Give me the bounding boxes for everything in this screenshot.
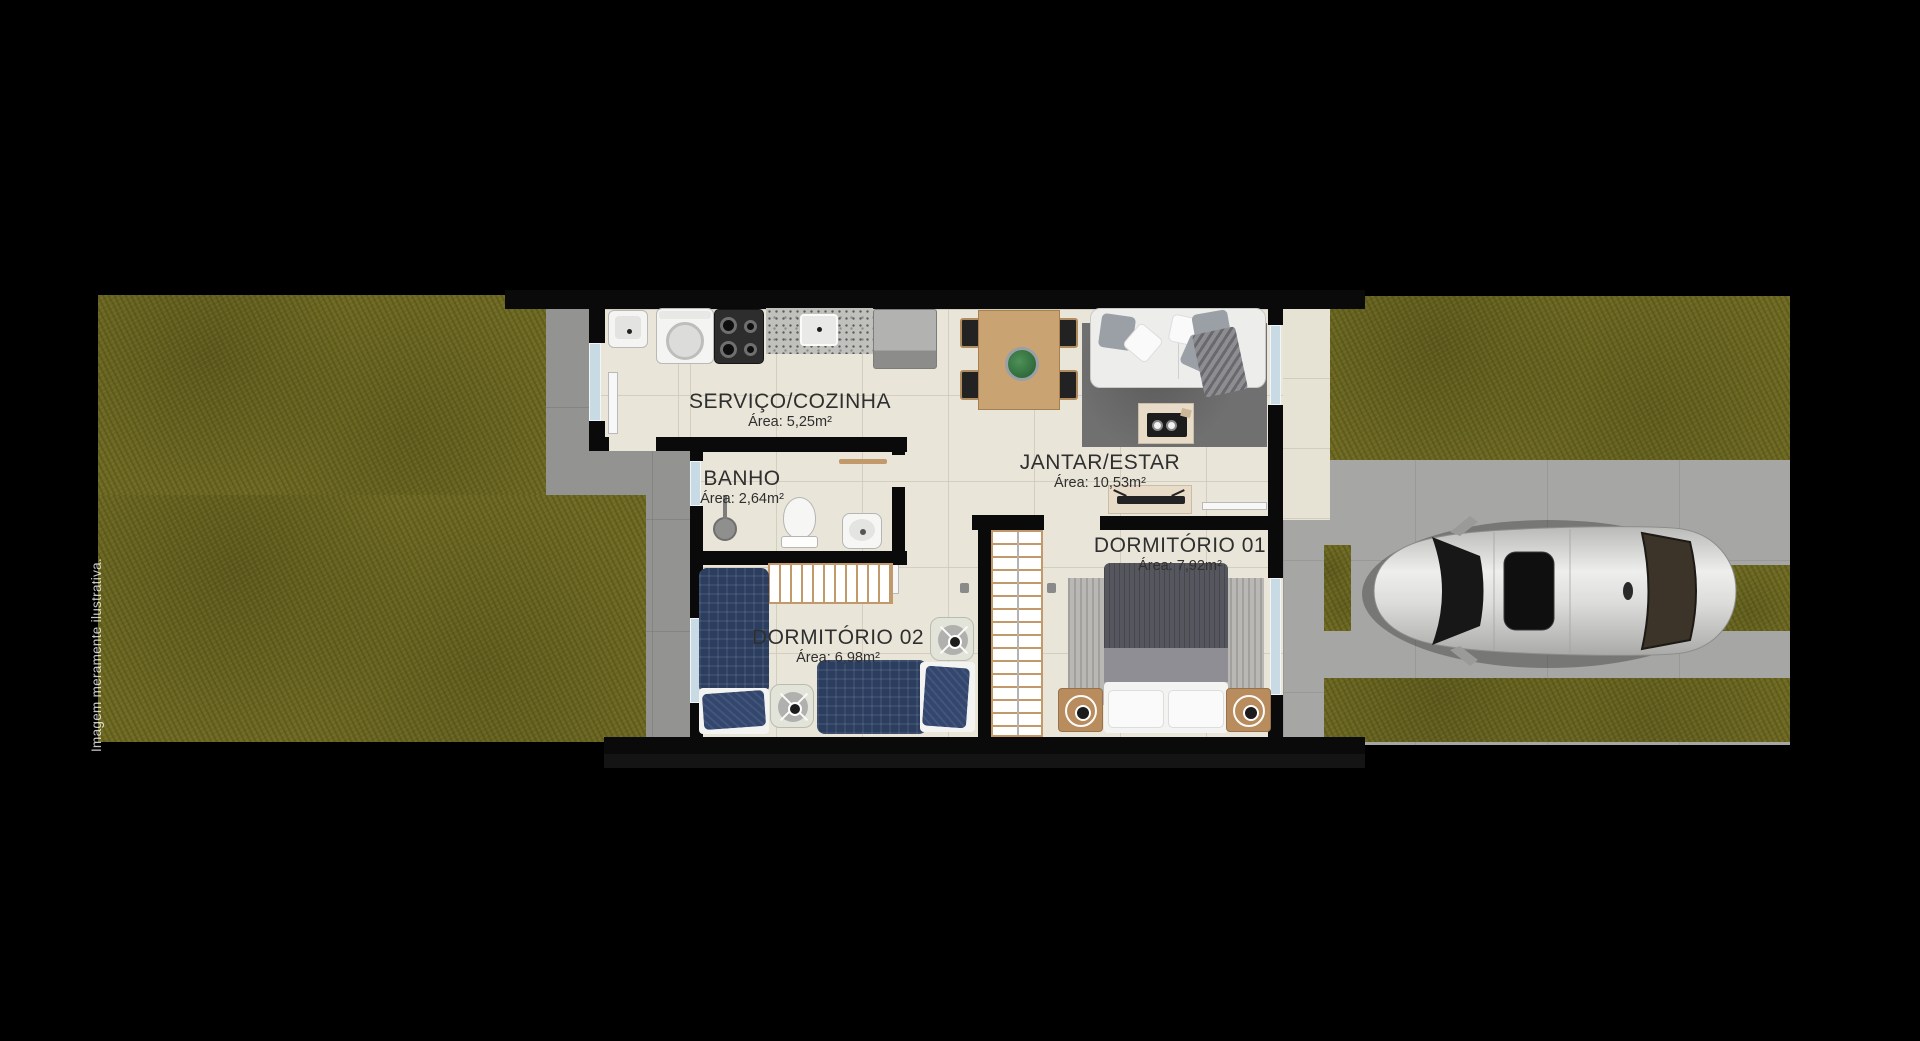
- coffee-table: [1138, 403, 1194, 444]
- car-sunroof: [1504, 552, 1554, 630]
- wall-kitchen-banho: [703, 437, 907, 452]
- bed-single-horizontal: [817, 660, 927, 734]
- shower-head: [713, 517, 737, 541]
- wall-service-west-a: [589, 309, 605, 343]
- grass-left-upper: [98, 295, 546, 497]
- table-plant: [1005, 347, 1039, 381]
- wall-bottom-shadow: [604, 754, 1365, 768]
- washer-panel: [659, 311, 711, 319]
- burner: [720, 341, 737, 358]
- room-name: DORMITÓRIO 01: [1030, 534, 1330, 558]
- room-name: JANTAR/ESTAR: [950, 451, 1250, 475]
- lamp: [778, 692, 808, 722]
- nightstand: [1058, 688, 1103, 732]
- car-antenna: [1623, 582, 1633, 600]
- room-name: DORMITÓRIO 02: [688, 626, 988, 650]
- burner: [744, 320, 757, 333]
- laundry-tub-basin: [615, 316, 641, 339]
- towel-bar: [839, 459, 887, 464]
- stair-rail-mark-right: [1047, 583, 1056, 593]
- room-label-dormitorio-02: DORMITÓRIO 02 Área: 6,98m²: [688, 626, 988, 667]
- watermark-text: Imagem meramente ilustrativa.: [89, 558, 104, 752]
- room-label-dormitorio-01: DORMITÓRIO 01 Área: 7,92m²: [1030, 534, 1330, 575]
- lamp: [1065, 695, 1097, 727]
- wall-stair-header: [972, 515, 1044, 530]
- door-service-leaf: [608, 372, 618, 434]
- grass-strip-bottom-right: [1324, 678, 1790, 742]
- room-area: Área: 7,92m²: [1030, 558, 1330, 575]
- refrigerator: [873, 309, 937, 369]
- burner: [720, 317, 737, 334]
- nightstand: [770, 684, 814, 728]
- laundry-tub-drain: [627, 329, 632, 334]
- car-rear-window: [1642, 533, 1696, 649]
- car: [1352, 512, 1744, 672]
- room-label-banho: BANHO Área: 2,64m²: [642, 467, 842, 508]
- floorplan-canvas: SERVIÇO/COZINHA Área: 5,25m² BANHO Área:…: [0, 0, 1920, 1041]
- lamp: [1233, 695, 1265, 727]
- window-estar: [1270, 325, 1281, 405]
- wall-top: [505, 290, 1365, 309]
- laundry-tub: [608, 310, 648, 348]
- washer-drum: [666, 322, 704, 360]
- bed-pillow: [1168, 690, 1224, 728]
- room-label-jantar-estar: JANTAR/ESTAR Área: 10,53m²: [950, 451, 1250, 492]
- cup: [1152, 420, 1163, 431]
- stair-rail-mark-left: [960, 583, 969, 593]
- cup: [1166, 420, 1177, 431]
- bed-pillow: [1108, 690, 1164, 728]
- wall-bottom: [604, 737, 1365, 754]
- kitchen-counter: [766, 308, 873, 354]
- window-dormitorio01: [1270, 578, 1281, 695]
- room-label-servico-cozinha: SERVIÇO/COZINHA Área: 5,25m²: [640, 390, 940, 431]
- burner: [744, 343, 757, 356]
- grass-left-lower: [98, 495, 646, 742]
- grass-right-top: [1323, 296, 1790, 460]
- wall-banho-east-a: [892, 437, 905, 455]
- room-name: BANHO: [642, 467, 842, 491]
- door-dormitorio01-leaf: [1202, 502, 1267, 510]
- kitchen-faucet: [817, 327, 822, 332]
- wall-service-south-a: [589, 437, 609, 451]
- wall-east-a: [1268, 309, 1283, 325]
- wall-dormitorio01-north: [1100, 516, 1268, 530]
- room-area: Área: 6,98m²: [688, 650, 988, 667]
- room-area: Área: 5,25m²: [640, 414, 940, 431]
- side-porch: [1283, 308, 1330, 520]
- wall-service-south-b: [656, 437, 690, 451]
- wall-east-b: [1268, 405, 1283, 518]
- wardrobe: [768, 563, 893, 604]
- room-area: Área: 2,64m²: [642, 491, 842, 508]
- bathroom-sink: [842, 513, 882, 549]
- stove: [714, 309, 764, 364]
- window-service: [589, 343, 601, 421]
- sink-drain: [860, 529, 866, 535]
- washing-machine: [656, 308, 714, 364]
- wall-west-a: [690, 437, 703, 461]
- tv: [1117, 496, 1185, 504]
- bed-pillow: [922, 666, 970, 729]
- room-name: SERVIÇO/COZINHA: [640, 390, 940, 414]
- room-area: Área: 10,53m²: [950, 475, 1250, 492]
- double-bed: [1104, 563, 1228, 648]
- nightstand: [1226, 688, 1271, 732]
- toilet-tank: [781, 536, 818, 548]
- bed-pillow: [702, 690, 766, 730]
- double-bed-fold: [1104, 648, 1228, 682]
